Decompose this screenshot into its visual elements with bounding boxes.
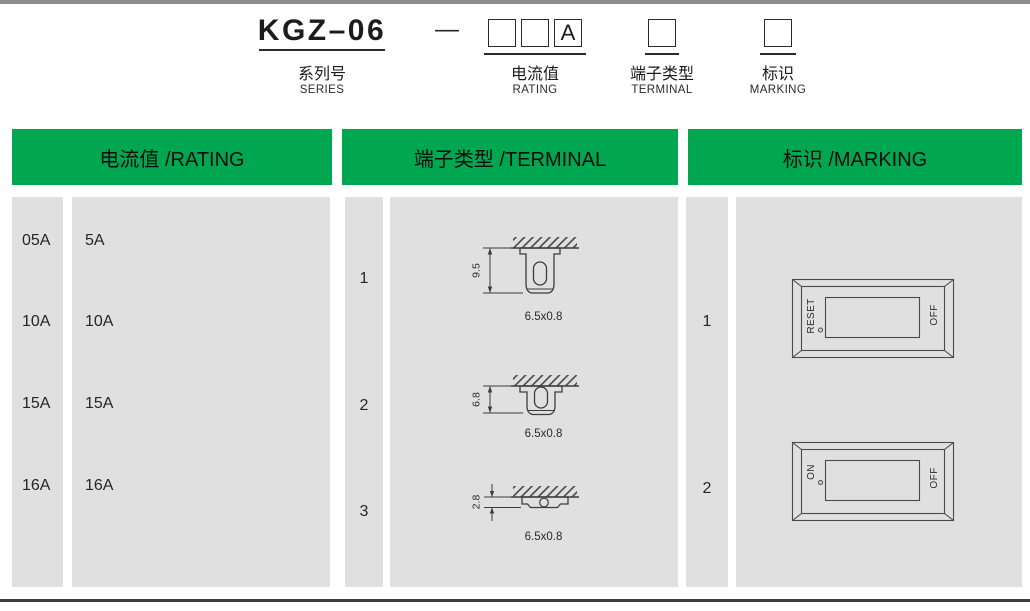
rocker-button bbox=[826, 298, 920, 338]
rating-box-1 bbox=[488, 19, 516, 47]
rating-code: 05A bbox=[22, 232, 50, 249]
rating-value-column: 5A 10A 15A 16A bbox=[72, 197, 330, 587]
dimension-arrow-up bbox=[488, 248, 492, 255]
marking-option-code: 1 bbox=[686, 313, 728, 331]
column-header-rating-label: 电流值 /RATING bbox=[99, 143, 244, 172]
rating-value: 10A bbox=[85, 313, 113, 330]
terminal-code-column: 1 2 3 bbox=[345, 197, 383, 587]
dimension-label: 6.8 bbox=[471, 392, 483, 407]
terminal-hole bbox=[535, 387, 548, 408]
panel-hatch bbox=[513, 237, 577, 248]
rating-box-3: A bbox=[554, 19, 582, 47]
switch-drawing-on-off: ON OFF bbox=[790, 441, 956, 523]
terminal-diagram-2: 6.8 6.5x0.8 bbox=[465, 372, 595, 450]
bevel-line bbox=[793, 351, 802, 358]
rating-code: 16A bbox=[22, 477, 50, 494]
marking-drawing-column bbox=[736, 197, 1022, 587]
bevel-line bbox=[945, 514, 954, 521]
terminal-underline bbox=[645, 53, 679, 55]
bevel-line bbox=[945, 351, 954, 358]
size-label: 6.5x0.8 bbox=[525, 531, 563, 543]
rating-value: 5A bbox=[85, 232, 105, 249]
size-label: 6.5x0.8 bbox=[525, 311, 563, 323]
marking-label-en: MARKING bbox=[703, 84, 853, 96]
column-header-terminal-label: 端子类型 /TERMINAL bbox=[414, 143, 606, 172]
terminal-hole bbox=[540, 498, 549, 507]
datasheet-page: KGZ–06 系列号 SERIES — A 电流值 RATING 端子类型 TE… bbox=[0, 0, 1030, 611]
bevel-line bbox=[793, 514, 802, 521]
ordering-code-diagram: KGZ–06 系列号 SERIES — A 电流值 RATING 端子类型 TE… bbox=[0, 0, 1030, 110]
rating-code: 10A bbox=[22, 313, 50, 330]
series-label-cn: 系列号 bbox=[247, 60, 397, 84]
dimension-arrow-down bbox=[490, 491, 494, 497]
bevel-line bbox=[793, 280, 802, 287]
indicator-dot bbox=[819, 328, 823, 332]
bevel-line bbox=[793, 443, 802, 450]
terminal-diagram-1: 9.5 6.5x0.8 bbox=[465, 233, 595, 328]
column-header-terminal: 端子类型 /TERMINAL bbox=[342, 129, 678, 185]
dimension-arrow-down bbox=[488, 407, 492, 414]
switch-drawing-reset-off: RESET OFF bbox=[790, 278, 956, 360]
dimension-arrow-up bbox=[490, 508, 494, 514]
indicator-dot bbox=[819, 481, 823, 485]
rating-value: 16A bbox=[85, 477, 113, 494]
marking-option-code: 2 bbox=[686, 480, 728, 498]
panel-hatch bbox=[513, 375, 577, 386]
column-header-marking: 标识 /MARKING bbox=[688, 129, 1022, 185]
marking-label-cn: 标识 bbox=[703, 60, 853, 84]
marking-code-box-row bbox=[703, 19, 853, 47]
terminal-option-code: 2 bbox=[345, 397, 383, 415]
rating-code: 15A bbox=[22, 395, 50, 412]
marking-group: 标识 MARKING bbox=[703, 0, 853, 100]
marking-box bbox=[764, 19, 792, 47]
bezel-inner bbox=[802, 450, 945, 514]
rating-box-2 bbox=[521, 19, 549, 47]
series-code: KGZ–06 bbox=[247, 14, 397, 48]
bezel-inner bbox=[802, 287, 945, 351]
panel-hatch bbox=[513, 486, 577, 497]
terminal-option-code: 1 bbox=[345, 270, 383, 288]
dimension-arrow-down bbox=[488, 287, 492, 294]
series-group: KGZ–06 系列号 SERIES bbox=[247, 0, 397, 100]
rating-code-column: 05A 10A 15A 16A bbox=[12, 197, 63, 587]
switch-left-label: RESET bbox=[806, 298, 817, 333]
terminal-option-code: 3 bbox=[345, 503, 383, 521]
switch-right-label: OFF bbox=[929, 467, 940, 488]
rating-underline bbox=[484, 53, 586, 55]
terminal-hole bbox=[534, 262, 547, 285]
dimension-arrow-up bbox=[488, 386, 492, 393]
dimension-label: 2.8 bbox=[471, 495, 483, 510]
bevel-line bbox=[945, 443, 954, 450]
rating-value: 15A bbox=[85, 395, 113, 412]
marking-code-column: 1 2 bbox=[686, 197, 728, 587]
marking-underline bbox=[760, 53, 796, 55]
series-underline bbox=[259, 49, 385, 51]
switch-right-label: OFF bbox=[929, 304, 940, 325]
bottom-divider bbox=[0, 599, 1030, 602]
series-label-en: SERIES bbox=[247, 84, 397, 96]
switch-left-label: ON bbox=[806, 464, 817, 480]
size-label: 6.5x0.8 bbox=[525, 428, 563, 440]
terminal-diagram-3: 2.8 6.5x0.8 bbox=[465, 481, 595, 547]
bevel-line bbox=[945, 280, 954, 287]
rocker-button bbox=[826, 461, 920, 501]
terminal-box bbox=[648, 19, 676, 47]
column-header-marking-label: 标识 /MARKING bbox=[783, 143, 927, 172]
dimension-label: 9.5 bbox=[471, 263, 483, 278]
column-header-rating: 电流值 /RATING bbox=[12, 129, 332, 185]
